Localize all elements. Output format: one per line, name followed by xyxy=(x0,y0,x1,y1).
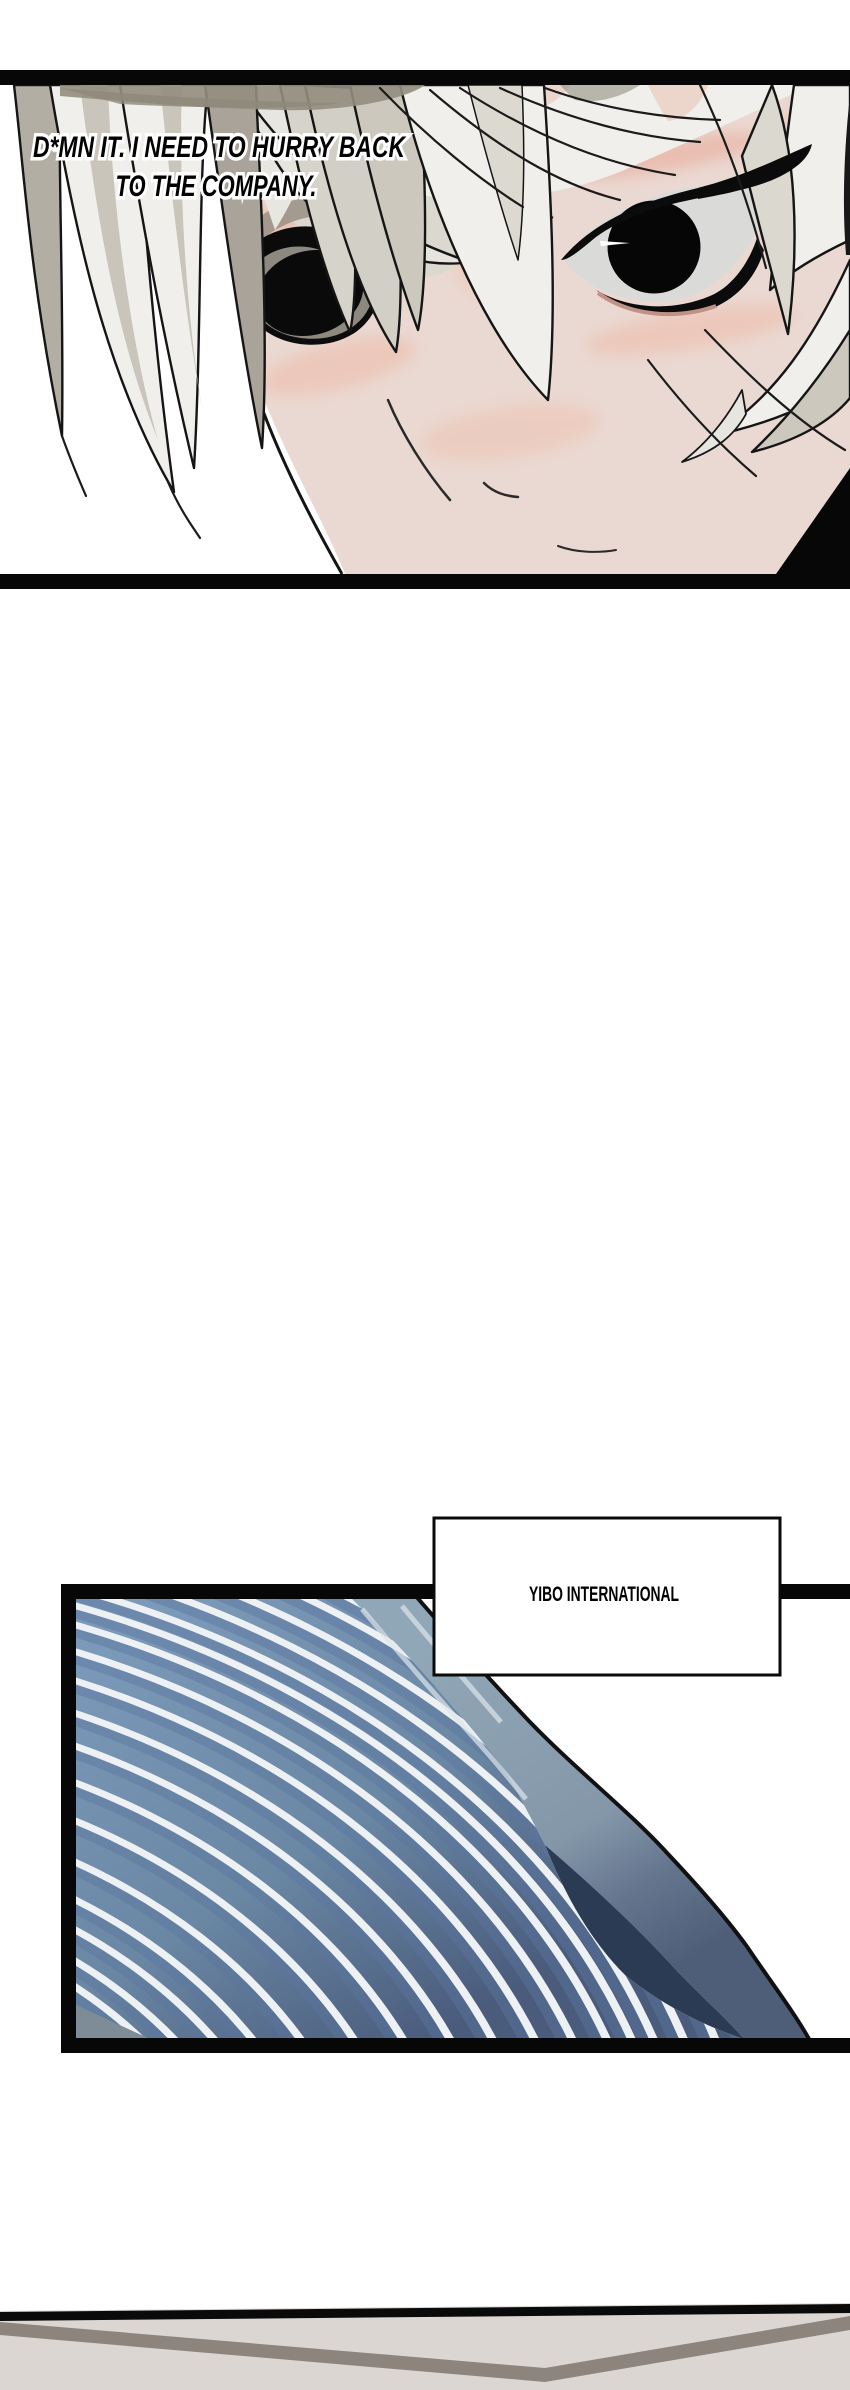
svg-text:TO THE COMPANY.: TO THE COMPANY. xyxy=(116,170,317,203)
svg-text:D*MN IT. I NEED TO HURRY BACK: D*MN IT. I NEED TO HURRY BACK xyxy=(33,131,407,164)
svg-text:YIBO INTERNATIONAL: YIBO INTERNATIONAL xyxy=(529,1583,679,1606)
